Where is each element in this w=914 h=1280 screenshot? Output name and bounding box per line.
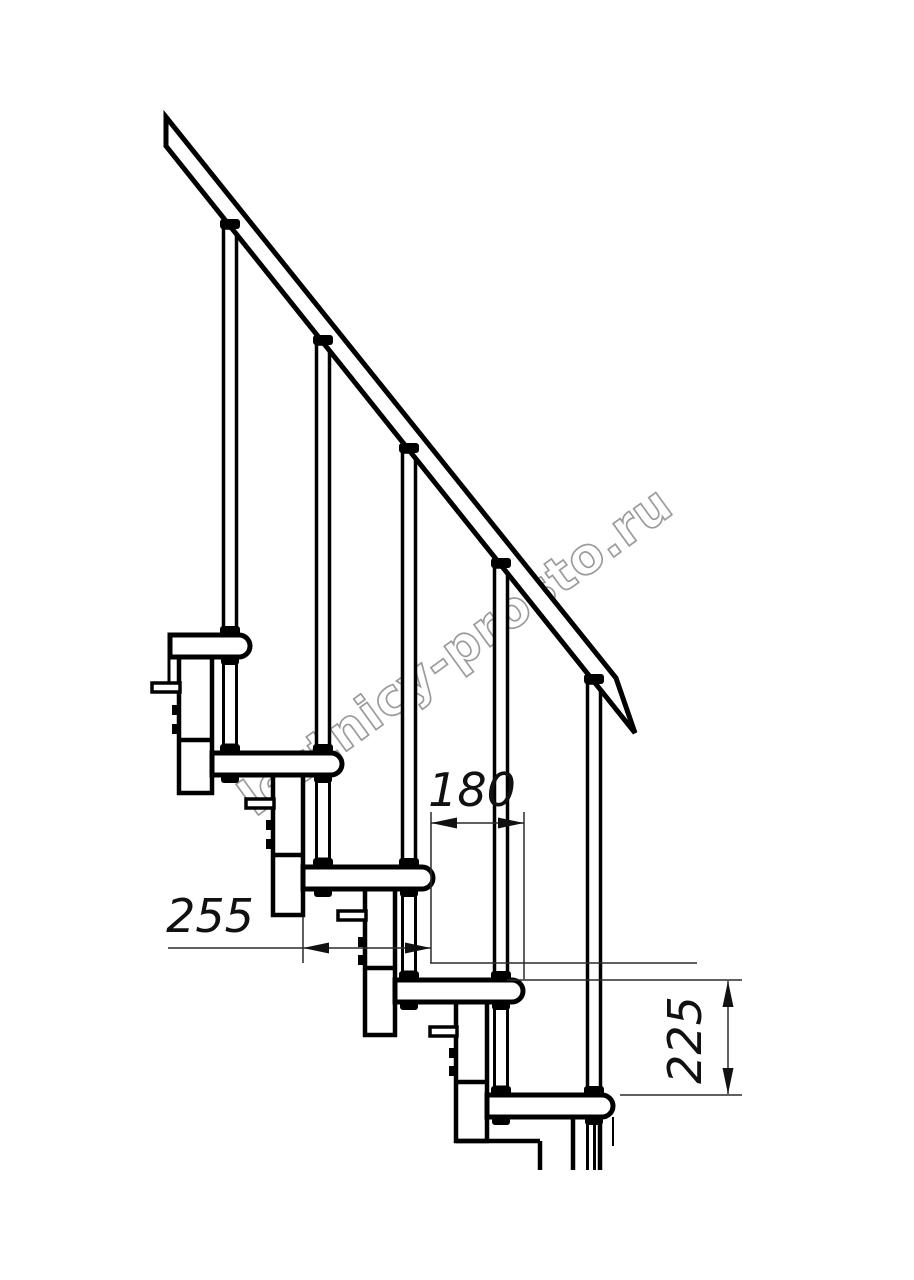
foot-tread5-rod4 (491, 1086, 511, 1096)
column-3 (365, 889, 395, 1035)
stub-module-1 (152, 683, 180, 692)
stub-module-3 (338, 911, 366, 920)
arrow-180-right (498, 818, 524, 829)
bolt-tab-c3-a (358, 937, 365, 947)
nut-tread5-rod5 (585, 1116, 603, 1125)
foot-tread1-b1 (220, 626, 240, 636)
tread-4 (395, 980, 523, 1002)
arrow-180-left (431, 818, 457, 829)
structure (166, 117, 635, 1170)
rod-stem-3 (403, 889, 416, 972)
nut-tread3-rod3 (400, 888, 418, 897)
bolt-tab-c2-b (266, 839, 273, 849)
nut-tread4-rod3 (400, 1001, 418, 1010)
bolt-tab-c3-b (358, 955, 365, 965)
arrow-255-right (405, 943, 431, 954)
foot-tread2-rod1 (220, 744, 240, 754)
baluster-2 (317, 344, 330, 753)
staircase-side-view-drawing: lestnicy-prosto.ru (0, 0, 914, 1280)
tread-5 (487, 1095, 613, 1117)
rod-stem-1 (224, 657, 237, 745)
arrow-225-up (723, 981, 734, 1007)
nut-tread5-rod4 (492, 1116, 510, 1125)
foot-tread3-b3 (399, 858, 419, 868)
nut-tread2-rod2 (314, 774, 332, 783)
rod-stem-2 (317, 775, 330, 859)
rail-cap-2 (313, 335, 333, 345)
bolt-tab-c2-a (266, 820, 273, 830)
foot-tread4-rod3 (399, 971, 419, 981)
stub-module-2 (246, 799, 274, 808)
column-4 (456, 1002, 487, 1141)
bolt-tab-c4-a (449, 1048, 456, 1058)
stub-module-4 (430, 1027, 457, 1036)
staircase-drawing-page: lestnicy-prosto.ru (0, 0, 914, 1280)
baluster-3 (403, 452, 416, 867)
bolt-tab-c4-b (449, 1066, 456, 1076)
bolt-tab-c1-a (172, 705, 179, 715)
rail-cap-3 (399, 443, 419, 453)
rail-cap-4 (491, 558, 511, 568)
column-1 (179, 657, 212, 793)
nut-tread3-rod2 (314, 888, 332, 897)
baluster-1 (224, 228, 237, 635)
arrow-255-left (303, 943, 329, 954)
column-2 (273, 775, 303, 915)
nut-tread2-rod1 (221, 774, 239, 783)
dim-label-225: 225 (658, 996, 712, 1084)
tread-3 (303, 867, 433, 889)
bolt-tab-c1-b (172, 724, 179, 734)
rail-cap-5 (584, 674, 604, 684)
foot-tread5-b5 (584, 1086, 604, 1096)
tread-1 (170, 635, 250, 657)
tread-2 (212, 753, 342, 775)
arrow-225-down (723, 1068, 734, 1094)
baluster-5 (588, 683, 601, 1095)
nut-tread4-rod4 (492, 1001, 510, 1010)
rod-stem-4 (495, 1002, 508, 1087)
foot-tread3-rod2 (313, 858, 333, 868)
dim-label-255: 255 (166, 889, 254, 943)
rail-cap-1 (220, 219, 240, 229)
dim-label-180: 180 (428, 763, 516, 817)
foot-tread2-b2 (313, 744, 333, 754)
nut-tread1 (221, 656, 239, 665)
